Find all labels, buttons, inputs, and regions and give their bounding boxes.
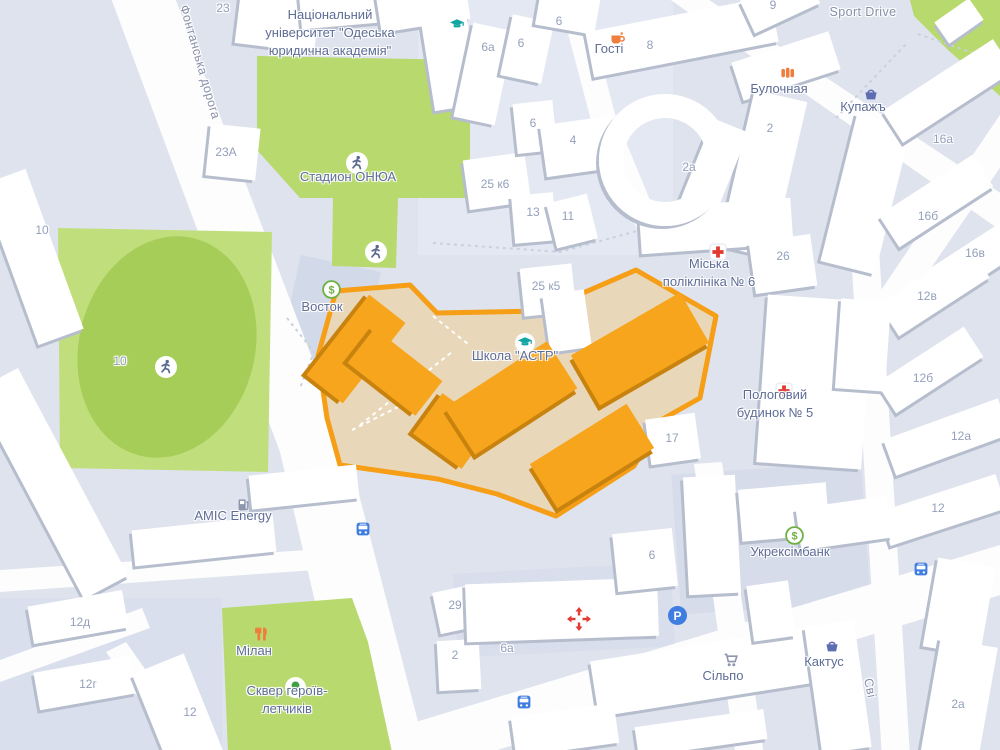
poi-label-line: Міська — [663, 255, 755, 273]
poi-label-vostok[interactable]: Восток — [301, 298, 342, 316]
poi-label-line: Сільпо — [703, 667, 744, 685]
svg-text:$: $ — [791, 530, 797, 542]
building-number: 25 к6 — [481, 177, 510, 191]
building-number: 10 — [35, 223, 48, 237]
poi-label-university[interactable]: Національнийуніверситет "Одеськаюридична… — [265, 6, 394, 60]
building-number: 12а — [951, 429, 971, 443]
poi-label-hosti[interactable]: Гості — [595, 40, 624, 58]
building-number: 12б — [913, 371, 933, 385]
building-number: 11 — [562, 209, 574, 223]
poi-label-line: Мілан — [236, 642, 272, 660]
building-number: 2а — [951, 697, 964, 711]
building-number: 13 — [526, 205, 539, 219]
poi-label-line: будинок № 5 — [737, 404, 814, 422]
poi-label-line: Кактус — [804, 653, 844, 671]
building-number: 12 — [931, 501, 944, 515]
map-canvas[interactable]: Національнийуніверситет "Одеськаюридична… — [0, 0, 1000, 750]
poi-label-line: Стадион ОНЮА — [300, 168, 396, 186]
building-number: 2 — [767, 121, 774, 135]
building-number: 26 — [776, 249, 789, 263]
poi-label-bulochnaya[interactable]: Булочная — [750, 80, 807, 98]
building-number: 6 — [518, 36, 525, 50]
building-number: 6 — [649, 548, 656, 562]
building — [437, 639, 482, 691]
building-number: 10 — [113, 354, 126, 368]
poi-label-milan[interactable]: Мілан — [236, 642, 272, 660]
building — [542, 289, 592, 352]
poi-label-line: Укрексімбанк — [750, 543, 829, 561]
building-number: 9 — [770, 0, 777, 12]
building-number: 12в — [917, 289, 937, 303]
building-number: 4 — [570, 133, 577, 147]
building-number: 6 — [556, 14, 563, 28]
building-number: 23 — [216, 1, 229, 15]
poi-label-line: Сквер героїв- — [247, 682, 328, 700]
building — [612, 528, 678, 592]
poi-label-line: AMIC Energy — [194, 507, 271, 525]
building-number: 12г — [79, 677, 97, 691]
poi-label-line: Булочная — [750, 80, 807, 98]
building-number: 16б — [918, 209, 938, 223]
building — [835, 298, 891, 391]
poi-label-line: поліклініка № 6 — [663, 273, 755, 291]
svg-text:P: P — [673, 609, 681, 623]
poi-label-line: Восток — [301, 298, 342, 316]
building-number: 12д — [70, 615, 90, 629]
poi-label-stadium[interactable]: Стадион ОНЮА — [300, 168, 396, 186]
building-number: 29 — [448, 598, 461, 612]
poi-label-kupazh[interactable]: Купажъ — [840, 98, 885, 116]
poi-label-silpo[interactable]: Сільпо — [703, 667, 744, 685]
building — [746, 580, 795, 641]
building — [683, 475, 741, 596]
building-number: 8 — [647, 38, 654, 52]
building — [749, 234, 818, 294]
poi-label-ukreximbank[interactable]: Укрексімбанк — [750, 543, 829, 561]
building-number: 12 — [183, 705, 196, 719]
building-number: 6 — [530, 116, 537, 130]
poi-label-line: Пологовий — [737, 386, 814, 404]
building-round — [599, 94, 731, 226]
poi-label-line: Національний — [265, 6, 394, 24]
building-number: 16в — [965, 246, 985, 260]
svg-text:$: $ — [328, 284, 334, 296]
poi-label-kaktus[interactable]: Кактус — [804, 653, 844, 671]
building-number: 2а — [682, 160, 695, 174]
poi-label-line: Школа "АСТР" — [472, 347, 558, 365]
building-number: 6а — [500, 641, 513, 655]
building-number: 17 — [665, 431, 678, 445]
building-number: 25 к5 — [532, 279, 561, 293]
poi-label-line: Гості — [595, 40, 624, 58]
building-number: 23А — [215, 145, 236, 159]
street-name: Sport Drive — [830, 5, 897, 19]
poi-label-amic[interactable]: AMIC Energy — [194, 507, 271, 525]
building-number: 2 — [452, 648, 459, 662]
building-number: 6а — [481, 40, 494, 54]
poi-label-skver[interactable]: Сквер героїв-летчиків — [247, 682, 328, 718]
poi-label-line: юридична академія" — [265, 42, 394, 60]
poi-label-poliklinika[interactable]: Міськаполіклініка № 6 — [663, 255, 755, 291]
poi-label-pologovy[interactable]: Пологовийбудинок № 5 — [737, 386, 814, 422]
poi-label-school-astr[interactable]: Школа "АСТР" — [472, 347, 558, 365]
poi-label-line: летчиків — [247, 700, 328, 718]
poi-label-line: Купажъ — [840, 98, 885, 116]
poi-label-line: університет "Одеська — [265, 24, 394, 42]
building-number: 16а — [933, 132, 953, 146]
